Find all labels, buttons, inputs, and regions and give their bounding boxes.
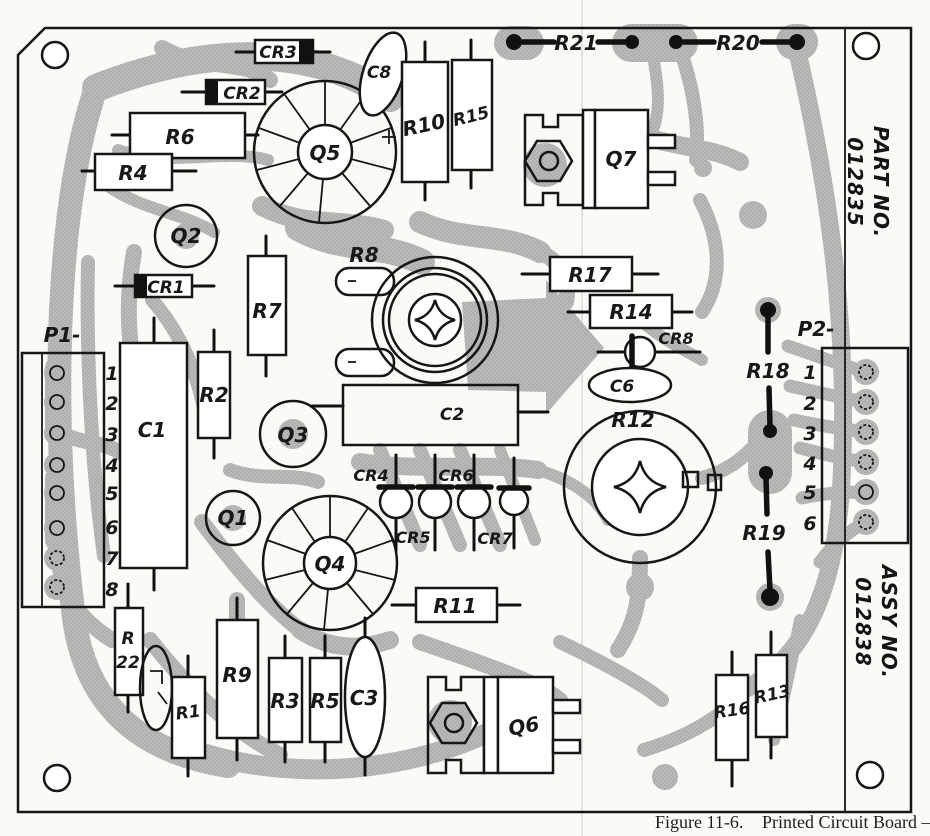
pcb-drawing: R21 R20 CR3 CR2 CR1 R6 R4 [0, 0, 930, 836]
label-c6: C6 [610, 377, 634, 397]
p1-pin-4: 4 [104, 455, 118, 477]
label-r18: R18 [746, 359, 789, 383]
label-r21: R21 [554, 31, 597, 55]
mounting-hole-top-left [42, 42, 68, 68]
label-q5: Q5 [310, 141, 341, 165]
label-cr7: CR7 [477, 529, 513, 548]
label-r3: R3 [270, 689, 299, 713]
part-no-label: PART NO. [869, 126, 893, 238]
component-r2: R2 [198, 330, 230, 458]
label-r19: R19 [742, 521, 785, 545]
q6-lead-tab [553, 740, 580, 753]
label-p1: P1- [44, 323, 81, 347]
component-q3: Q3 [260, 401, 326, 467]
component-c6: C6 [589, 368, 671, 402]
label-q7: Q7 [606, 147, 637, 171]
component-r7: R7 [248, 236, 286, 376]
p2-pin-5: 5 [803, 482, 816, 504]
caption-figure-number: Figure 11-6. [655, 812, 743, 832]
component-r15: R15 [451, 40, 492, 188]
p2-pin-2: 2 [803, 393, 816, 415]
label-r20: R20 [716, 31, 759, 55]
label-cr5: CR5 [395, 528, 430, 547]
label-q4: Q4 [315, 552, 346, 576]
label-r7: R7 [252, 299, 281, 323]
component-r10: R10 [400, 42, 448, 200]
component-r6: R6 [112, 113, 258, 158]
mounting-hole-top-right [853, 33, 879, 59]
label-r8: R8 [349, 243, 378, 267]
p1-pin-7: 7 [105, 548, 119, 570]
q7-lead-tab [648, 135, 675, 148]
label-c1: C1 [138, 418, 167, 442]
label-c2: C2 [440, 405, 464, 425]
label-r22-bottom: 22 [116, 653, 140, 673]
label-cr2: CR2 [223, 84, 260, 104]
pcb-figure: R21 R20 CR3 CR2 CR1 R6 R4 [0, 0, 930, 836]
component-q4: Q4 [263, 496, 397, 630]
part-no-value: 012835 [843, 137, 867, 227]
component-q1: Q1 [206, 491, 260, 545]
p1-pin-2: 2 [105, 393, 118, 415]
q7-lead-tab [648, 172, 675, 185]
p1-pin-3: 3 [105, 424, 118, 446]
assy-no-label: ASSY NO. [877, 563, 901, 679]
label-cr6: CR6 [438, 466, 473, 485]
label-r9: R9 [222, 663, 251, 687]
part-number-note: PART NO. 012835 [843, 126, 893, 238]
component-r16: R16 [713, 652, 752, 786]
component-r3: R3 [269, 636, 302, 762]
label-c8: C8 [367, 63, 391, 83]
p2-pin-6: 6 [803, 513, 816, 535]
p1-pin-1: 1 [105, 363, 118, 385]
p2-pin-4: 4 [802, 453, 816, 475]
p1-pin-5: 5 [105, 483, 118, 505]
label-r2: R2 [199, 383, 228, 407]
label-c3: C3 [350, 686, 379, 710]
p2-pin-3: 3 [803, 423, 816, 445]
label-r1: R1 [174, 701, 201, 724]
p1-pin-6: 6 [105, 517, 118, 539]
label-r4: R4 [118, 161, 147, 185]
component-r14: R14 [568, 295, 692, 328]
component-c1: C1 [120, 318, 187, 590]
q6-lead-tab [553, 700, 580, 713]
figure-caption: Figure 11-6. Printed Circuit Board — [655, 812, 930, 832]
caption-title: Printed Circuit Board — [762, 812, 930, 832]
label-r14: R14 [609, 300, 652, 324]
label-cr1: CR1 [147, 278, 184, 298]
label-cr3: CR3 [259, 43, 296, 63]
p2-pin-1: 1 [803, 362, 816, 384]
mounting-hole-bottom-right [857, 762, 883, 788]
label-r6: R6 [165, 125, 194, 149]
label-r22-top: R [121, 629, 134, 649]
component-r9: R9 [217, 598, 258, 760]
label-cr8: CR8 [658, 329, 693, 348]
component-r11: R11 [392, 588, 520, 622]
label-q3: Q3 [278, 423, 309, 447]
assy-number-note: ASSY NO. 012838 [851, 563, 901, 679]
label-p2: P2- [798, 317, 835, 341]
label-cr4: CR4 [353, 466, 388, 485]
assy-no-value: 012838 [851, 577, 875, 667]
label-r17: R17 [568, 263, 611, 287]
component-r22: R 22 [115, 584, 143, 712]
component-r5: R5 [310, 636, 341, 762]
component-r12: R12 [564, 408, 721, 563]
component-c2: C2 [312, 385, 548, 445]
label-q2: Q2 [171, 224, 202, 248]
label-r11: R11 [433, 594, 476, 618]
mounting-hole-bottom-left [44, 765, 70, 791]
label-q1: Q1 [218, 506, 249, 530]
p1-pin-8: 8 [105, 579, 118, 601]
label-r5: R5 [310, 689, 339, 713]
